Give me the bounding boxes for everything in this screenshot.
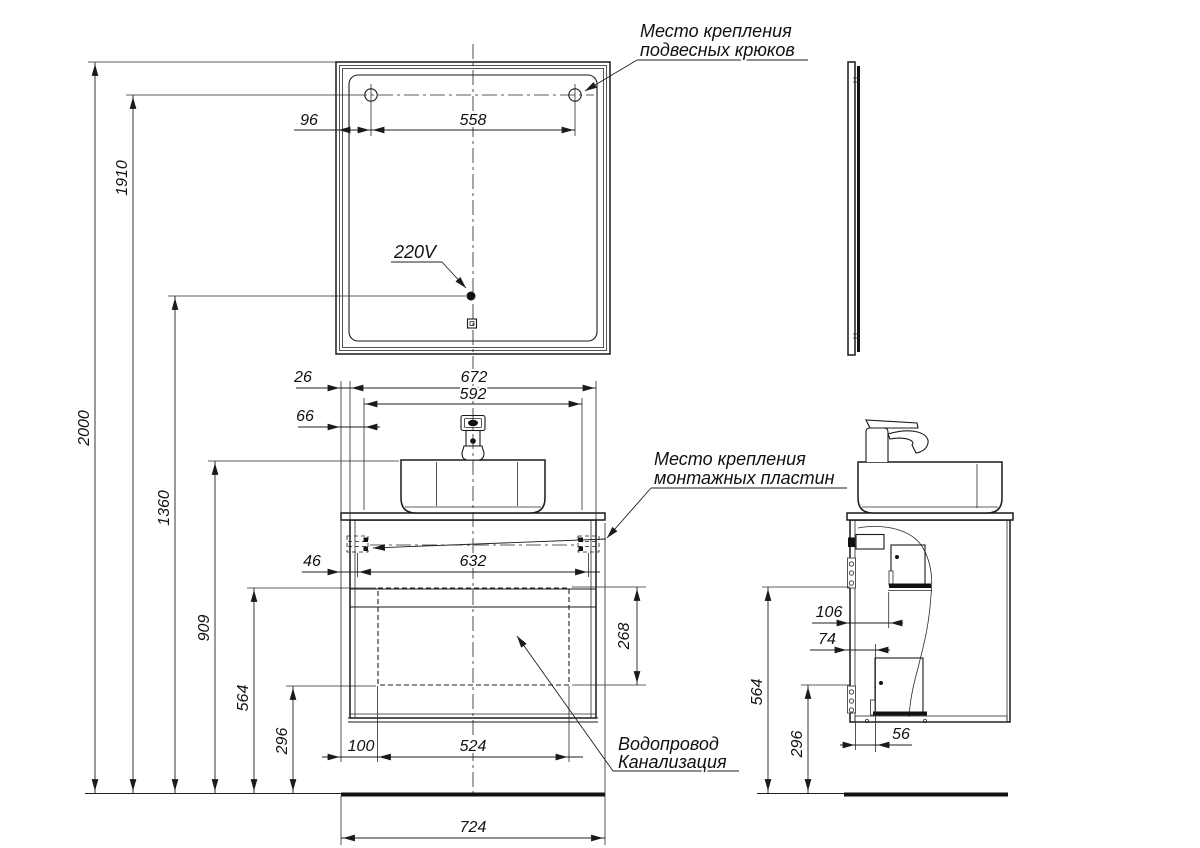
touch-sensor-icon: [468, 319, 477, 328]
cabinet-bottom-panel: [855, 716, 1007, 722]
dim-height-hooks: 1910: [114, 160, 131, 196]
side-plate-middle: [891, 545, 925, 585]
dim-height-overall: 2000: [76, 410, 93, 447]
dim-hook-offset: 96: [300, 112, 318, 129]
dim-side-bottom-plate: 56: [892, 726, 910, 743]
dim-height-opening-bottom: 296: [274, 728, 291, 756]
sink-side: [858, 462, 1002, 513]
break-line: [858, 526, 932, 717]
plates-note-line2: монтажных пластин: [654, 468, 835, 488]
dim-side-opening-bottom: 296: [789, 731, 806, 759]
dim-cabinet-width: 672: [461, 369, 488, 386]
cabinet-side: [850, 520, 1010, 722]
plates-leader-left: [373, 539, 606, 548]
hooks-note-line1: Место крепления: [640, 21, 792, 41]
floor-lines: [85, 793, 1008, 797]
dim-side-upper-plate: 106: [816, 604, 843, 621]
dim-height-basin: 909: [196, 615, 213, 642]
power-outlet-point: [467, 292, 476, 301]
plumbing-opening: [378, 588, 569, 685]
dim-plate-offset: 46: [303, 553, 321, 570]
installation-drawing-page: Место крепления подвесных крюков 220V Ме…: [0, 0, 1200, 848]
installation-drawing: Место крепления подвесных крюков 220V Ме…: [0, 0, 1200, 848]
mirror-side-body: [848, 62, 855, 355]
dim-opening-height: 268: [616, 623, 633, 651]
floor-projection-front: [341, 793, 605, 797]
dim-plate-spacing: 632: [460, 553, 487, 570]
mirror-side-glass: [857, 66, 860, 352]
floor-projection-side: [844, 793, 1008, 797]
dim-inner-offset: 66: [296, 408, 314, 425]
dim-height-outlet: 1360: [156, 490, 173, 526]
side-plate-upper: [856, 535, 884, 550]
dim-overall-width: 724: [460, 819, 487, 836]
dim-side-lower-plate: 74: [818, 631, 836, 648]
hooks-leader: [585, 60, 637, 91]
dim-overhang: 26: [293, 369, 312, 386]
dim-height-opening-top: 564: [235, 685, 252, 712]
dim-side-opening-top: 564: [749, 679, 766, 706]
plates-leader-right: [607, 488, 651, 538]
faucet-side: [866, 420, 928, 462]
dim-opening-width: 524: [460, 738, 487, 755]
plumbing-leader: [517, 636, 613, 771]
dim-hook-spacing: 558: [460, 112, 487, 129]
vanity-side-view: [847, 420, 1013, 723]
plates-note-line1: Место крепления: [654, 449, 806, 469]
power-label: 220V: [393, 242, 438, 262]
hooks-note-line2: подвесных крюков: [640, 40, 795, 60]
dim-opening-offset: 100: [348, 738, 375, 755]
mirror-side-view: [848, 62, 860, 355]
plumbing-note-line2: Канализация: [618, 752, 727, 772]
side-plate-lower: [875, 658, 923, 715]
countertop-side: [847, 513, 1013, 520]
dim-inner-span: 592: [460, 386, 487, 403]
power-leader: [442, 262, 466, 288]
plumbing-note-line1: Водопровод: [618, 734, 719, 754]
